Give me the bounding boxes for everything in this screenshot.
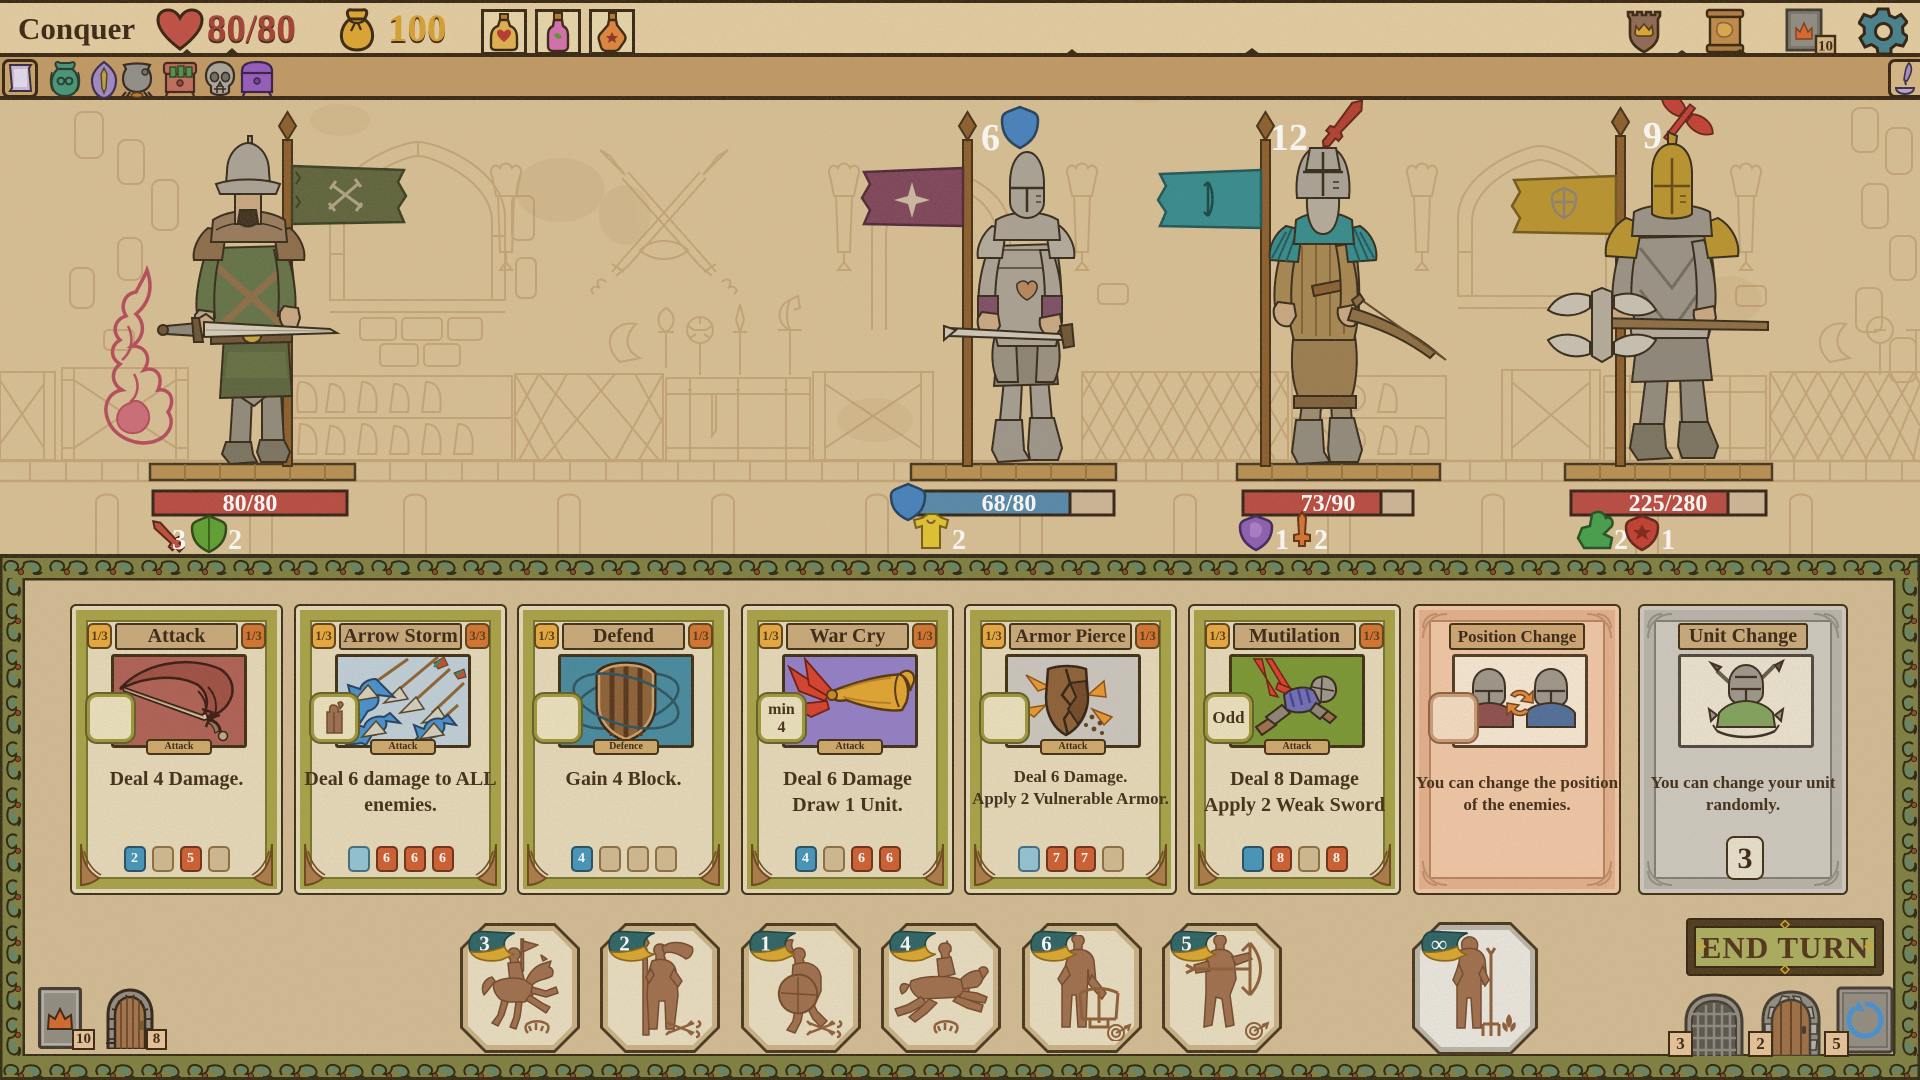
svg-text:2: 2 [1314,525,1328,556]
svg-text:2: 2 [952,525,966,556]
svg-text:2: 2 [228,525,242,556]
svg-text:5: 5 [1181,932,1191,956]
svg-text:225/280: 225/280 [1629,491,1708,517]
svg-text:3: 3 [172,525,186,556]
svg-text:4: 4 [900,932,911,956]
svg-text:1: 1 [760,932,770,956]
svg-text:73/90: 73/90 [1301,491,1356,517]
svg-text:1: 1 [1275,525,1289,556]
svg-text:6: 6 [1041,932,1051,956]
svg-text:6: 6 [981,117,1000,159]
svg-text:2: 2 [619,932,629,956]
svg-text:3: 3 [479,932,489,956]
svg-text:12: 12 [1270,117,1308,159]
svg-text:∞: ∞ [1431,932,1447,957]
svg-text:80/80: 80/80 [223,491,278,517]
svg-text:68/80: 68/80 [982,491,1037,517]
svg-text:1: 1 [1661,525,1675,556]
